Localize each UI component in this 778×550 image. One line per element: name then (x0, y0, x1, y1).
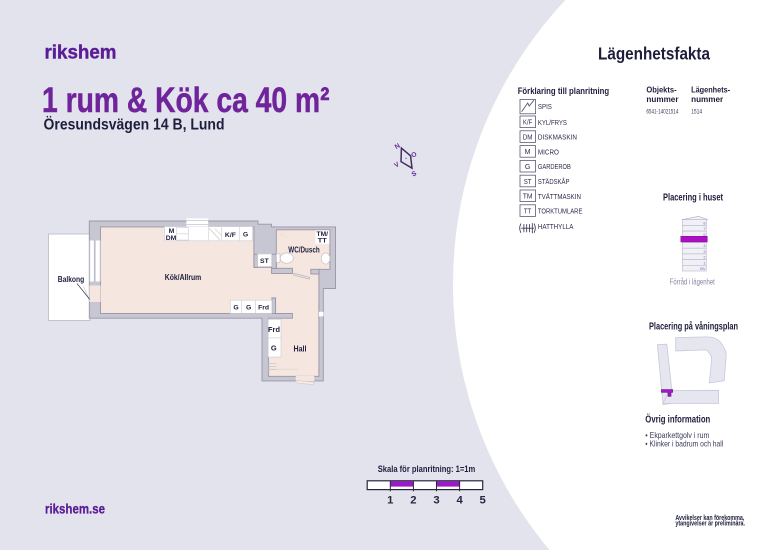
svg-text:Öresundsvägen 14 B, Lund: Öresundsvägen 14 B, Lund (44, 117, 225, 134)
svg-text:nummer: nummer (691, 94, 724, 104)
svg-text:DISKMASKIN: DISKMASKIN (538, 133, 577, 142)
svg-text:TORKTUMLARE: TORKTUMLARE (538, 207, 583, 216)
svg-text:K/F: K/F (523, 120, 532, 127)
svg-text:ytangivelser är preliminära.: ytangivelser är preliminära. (675, 521, 745, 528)
svg-text:WC/Dusch: WC/Dusch (288, 245, 320, 255)
svg-text:• Klinker i badrum och hall: • Klinker i badrum och hall (645, 439, 723, 449)
svg-text:K/F: K/F (225, 232, 236, 239)
svg-text:TM: TM (523, 194, 533, 201)
svg-text:rikshem: rikshem (45, 42, 117, 64)
svg-text:3: 3 (433, 494, 439, 506)
svg-text:Placering på våningsplan: Placering på våningsplan (649, 320, 738, 332)
svg-text:DM: DM (523, 134, 533, 141)
svg-text:G: G (271, 343, 277, 352)
svg-text:Förklaring till planritning: Förklaring till planritning (518, 86, 610, 96)
svg-text:1514: 1514 (691, 108, 702, 115)
svg-text:Lägenhetsfakta: Lägenhetsfakta (598, 44, 710, 64)
svg-text:Hall: Hall (294, 344, 307, 354)
svg-text:GARDEROB: GARDEROB (538, 162, 571, 171)
svg-text:MICRO: MICRO (538, 147, 559, 156)
svg-text:1: 1 (387, 494, 393, 506)
svg-text:TT: TT (318, 238, 327, 245)
svg-text:HATTHYLLA: HATTHYLLA (538, 222, 574, 231)
svg-text:Balkong: Balkong (58, 274, 85, 284)
svg-text:6541-14021514: 6541-14021514 (646, 108, 678, 115)
svg-text:Kök/Allrum: Kök/Allrum (165, 272, 202, 282)
svg-text:M: M (525, 149, 531, 156)
svg-text:5: 5 (480, 494, 486, 506)
svg-text:G: G (246, 305, 251, 312)
svg-text:TVÄTTMASKIN: TVÄTTMASKIN (538, 192, 581, 201)
svg-text:ST: ST (260, 258, 270, 265)
svg-text:Placering i huset: Placering i huset (663, 192, 723, 203)
svg-text:STÄDSKÅP: STÄDSKÅP (538, 177, 570, 186)
svg-text:nummer: nummer (646, 94, 679, 104)
svg-text:G: G (233, 305, 238, 312)
svg-text:rikshem.se: rikshem.se (45, 502, 105, 517)
svg-text:TT: TT (524, 208, 532, 215)
svg-text:Frd: Frd (258, 305, 269, 312)
svg-text:G: G (525, 164, 530, 171)
svg-text:ST: ST (524, 179, 532, 186)
svg-text:KYL/FRYS: KYL/FRYS (538, 118, 567, 127)
svg-text:2: 2 (410, 494, 416, 506)
svg-text:DM: DM (166, 235, 177, 242)
svg-text:BV: BV (700, 266, 706, 271)
svg-text:Övrig information: Övrig information (645, 413, 710, 426)
svg-text:SPIS: SPIS (538, 102, 552, 111)
svg-text:4: 4 (456, 494, 463, 506)
svg-text:Skala för planritning: 1=1m: Skala för planritning: 1=1m (378, 464, 476, 474)
svg-text:Förråd i lägenhet: Förråd i lägenhet (670, 276, 716, 286)
svg-text:G: G (243, 232, 248, 239)
svg-text:1 rum & Kök ca 40 m²: 1 rum & Kök ca 40 m² (42, 80, 330, 120)
svg-text:Frd: Frd (268, 325, 280, 334)
